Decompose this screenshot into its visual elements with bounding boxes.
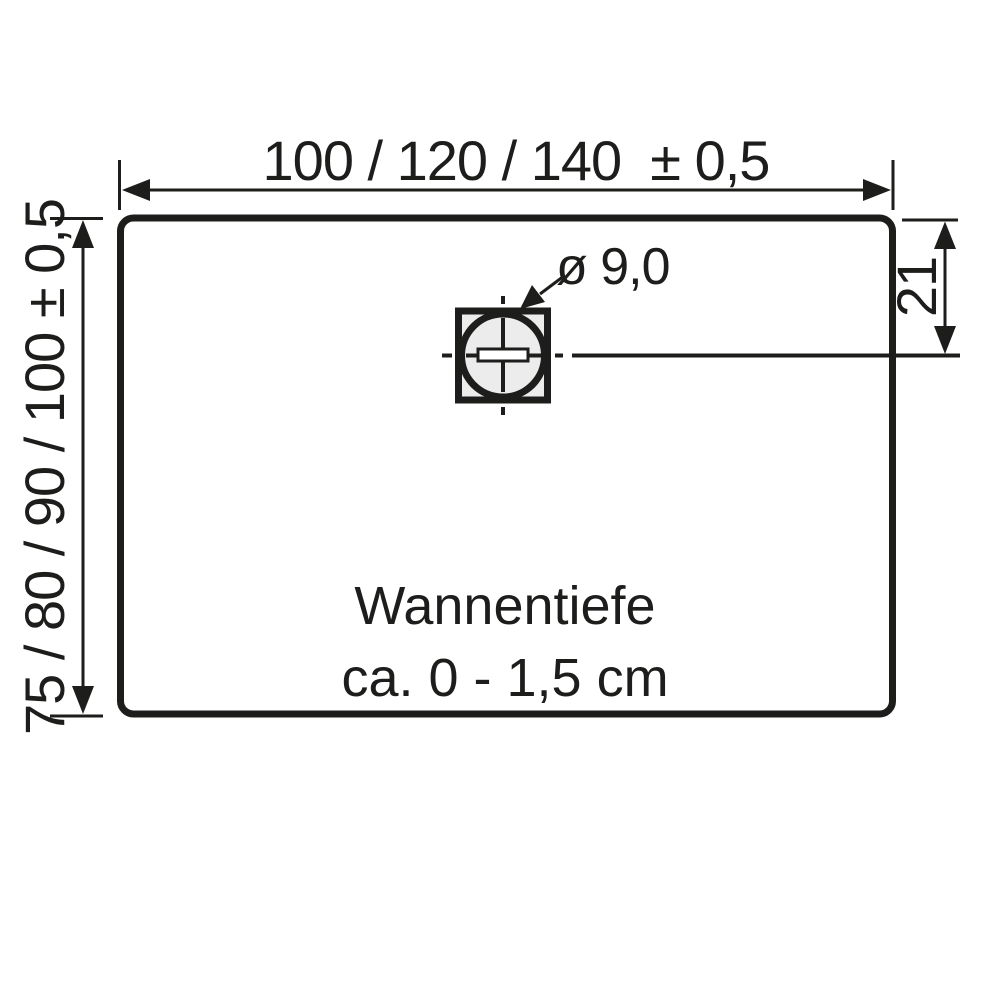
- technical-drawing-canvas: 100 / 120 / 140 ± 0,5 75 / 80 / 90 / 100…: [0, 0, 1000, 1000]
- tray-outline-group: [121, 218, 893, 714]
- width-dimension-label: 100 / 120 / 140 ± 0,5: [263, 129, 770, 192]
- width-arrowhead-left-icon: [122, 179, 150, 201]
- shower-tray-diagram: 100 / 120 / 140 ± 0,5 75 / 80 / 90 / 100…: [0, 0, 1000, 1000]
- drain-offset-arrowhead-top-icon: [934, 222, 956, 250]
- diameter-label: ø 9,0: [556, 238, 670, 296]
- depth-dimension-group: 75 / 80 / 90 / 100 ± 0,5: [13, 199, 103, 735]
- depth-note-line2: ca. 0 - 1,5 cm: [341, 648, 668, 708]
- width-dimension-group: 100 / 120 / 140 ± 0,5: [120, 129, 894, 210]
- tray-outline: [121, 218, 893, 714]
- width-arrowhead-right-icon: [863, 179, 891, 201]
- drain-offset-arrowhead-bottom-icon: [934, 326, 956, 354]
- depth-dimension-label: 75 / 80 / 90 / 100 ± 0,5: [13, 199, 76, 735]
- depth-note-line1: Wannentiefe: [354, 576, 655, 636]
- drain-offset-dimension-label: 21: [885, 257, 948, 317]
- drain-slot: [478, 349, 528, 361]
